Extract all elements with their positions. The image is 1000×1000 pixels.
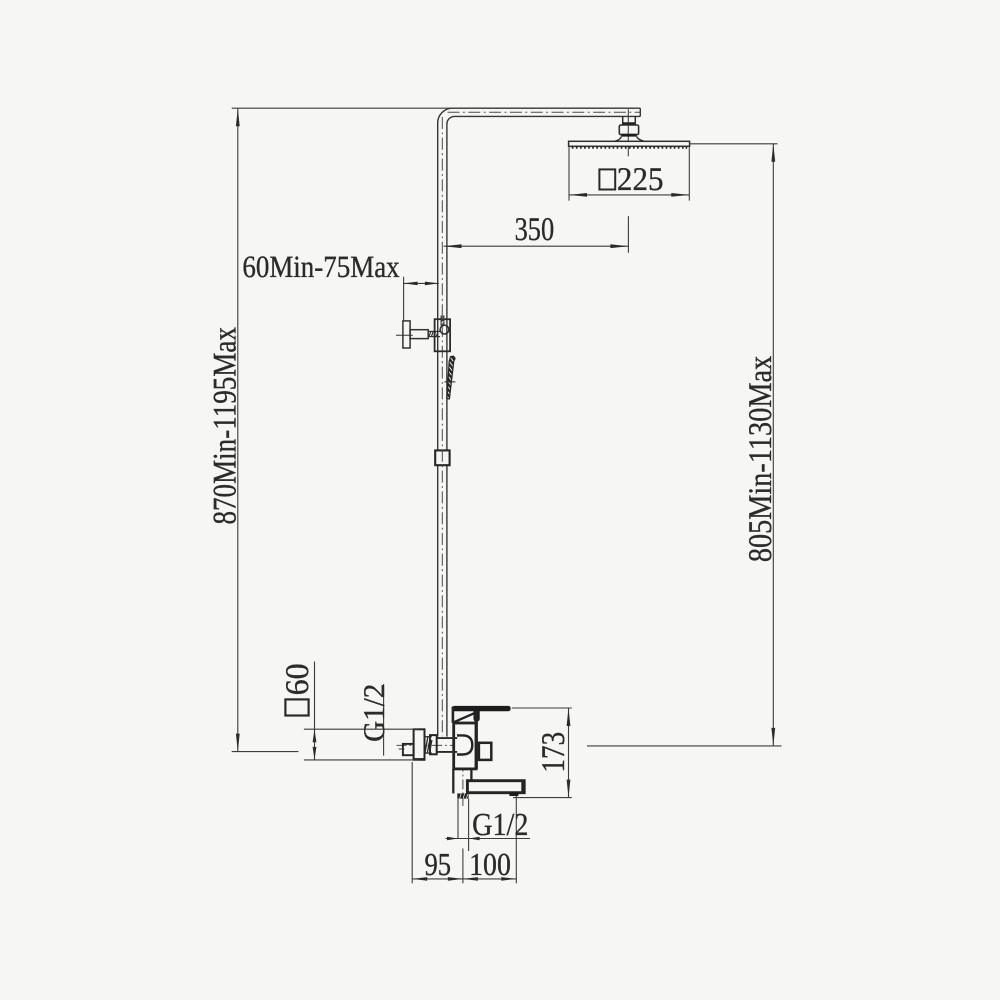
svg-text:60: 60 — [280, 663, 316, 695]
svg-text:805Min-1130Max: 805Min-1130Max — [743, 355, 779, 562]
svg-text:100: 100 — [469, 846, 511, 882]
svg-text:870Min-1195Max: 870Min-1195Max — [208, 327, 244, 525]
svg-text:G1/2: G1/2 — [358, 684, 391, 742]
svg-text:G1/2: G1/2 — [472, 806, 528, 842]
svg-text:60Min-75Max: 60Min-75Max — [242, 249, 400, 284]
svg-text:350: 350 — [515, 212, 555, 248]
svg-text:95: 95 — [425, 846, 452, 882]
svg-text:225: 225 — [617, 162, 664, 198]
svg-text:173: 173 — [536, 732, 572, 773]
